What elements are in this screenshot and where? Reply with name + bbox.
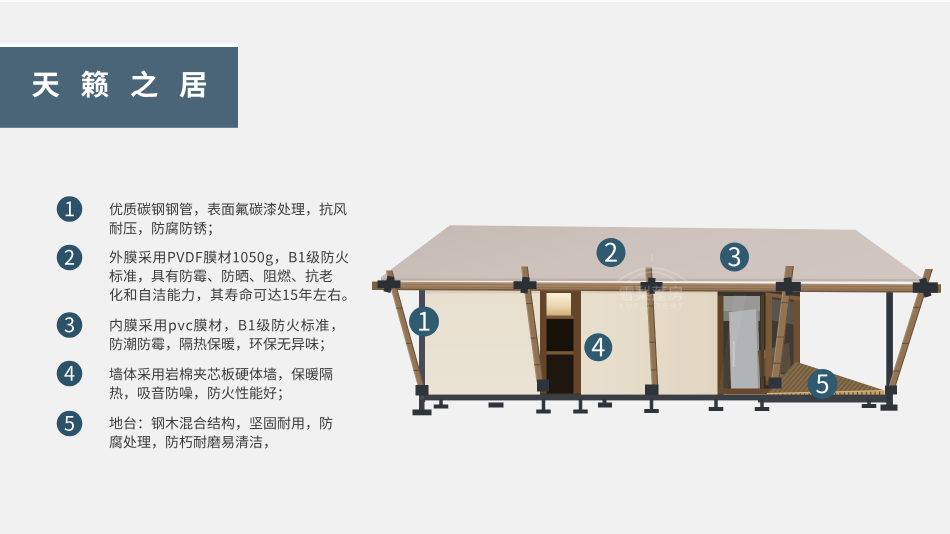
svg-text:XUELI TENT: XUELI TENT	[619, 302, 685, 311]
